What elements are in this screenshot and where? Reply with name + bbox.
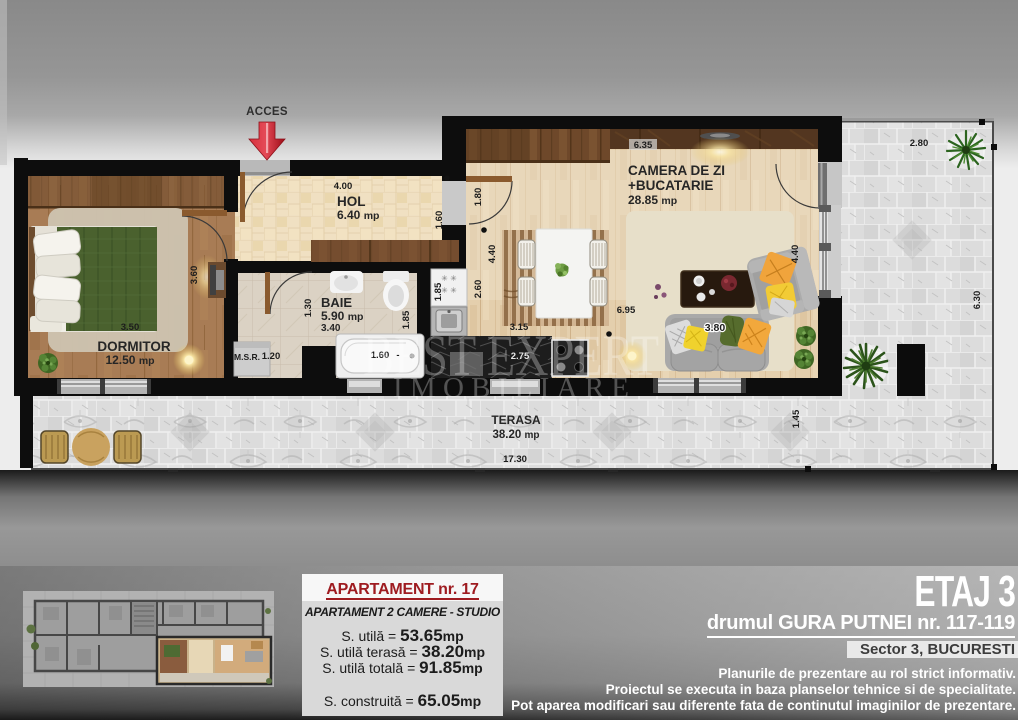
svg-text:4.00: 4.00: [334, 181, 353, 192]
svg-text:17.30: 17.30: [503, 454, 527, 465]
svg-text:1.30: 1.30: [303, 299, 314, 318]
svg-text:2.60: 2.60: [473, 280, 484, 299]
svg-text:DORMITOR: DORMITOR: [97, 339, 170, 354]
svg-text:3.80: 3.80: [705, 322, 726, 334]
svg-text:1.45: 1.45: [791, 409, 802, 428]
svg-text:3.50: 3.50: [121, 322, 140, 333]
svg-text:4.40: 4.40: [790, 245, 801, 264]
svg-text:6.35: 6.35: [634, 140, 653, 151]
svg-text:6.30: 6.30: [972, 291, 983, 310]
svg-text:2.80: 2.80: [910, 138, 929, 149]
svg-text:1.85: 1.85: [433, 282, 444, 301]
svg-text:1.80: 1.80: [473, 188, 484, 207]
svg-text:4.40: 4.40: [487, 245, 498, 264]
svg-text:3.60: 3.60: [189, 266, 200, 285]
svg-text:6.40 mp: 6.40 mp: [337, 208, 379, 222]
svg-text:✳ ✳: ✳ ✳: [441, 274, 457, 283]
svg-text:CAMERA DE ZI: CAMERA DE ZI: [628, 163, 725, 178]
svg-text:6.95: 6.95: [617, 305, 636, 316]
svg-text:HOL: HOL: [337, 194, 366, 209]
svg-text:+BUCATARIE: +BUCATARIE: [628, 178, 713, 193]
svg-text:3.40: 3.40: [321, 323, 341, 334]
svg-text:1.20: 1.20: [262, 351, 281, 362]
svg-text:28.85 mp: 28.85 mp: [628, 193, 677, 207]
svg-text:38.20 mp: 38.20 mp: [493, 429, 540, 441]
svg-text:ACCES: ACCES: [246, 106, 288, 118]
svg-text:12.50 mp: 12.50 mp: [105, 353, 154, 367]
svg-text:BAIE: BAIE: [321, 295, 352, 310]
svg-text:M.S.R.: M.S.R.: [234, 352, 260, 362]
svg-text:5.90 mp: 5.90 mp: [321, 309, 363, 323]
svg-text:1.60: 1.60: [434, 211, 445, 230]
svg-text:TERASA: TERASA: [491, 413, 541, 427]
